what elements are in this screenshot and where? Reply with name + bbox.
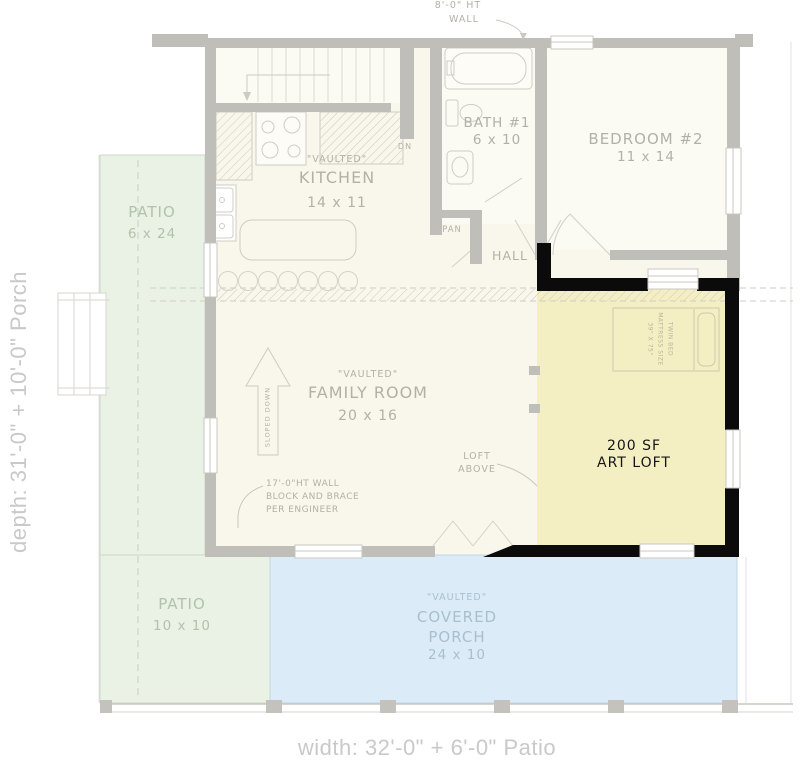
twin-bed-note-line1: TWIN BED	[664, 312, 674, 366]
kitchen-size-label: 14 x 11	[307, 196, 367, 211]
window-left-wall-upper	[204, 243, 217, 297]
bath1-label: BATH #1	[463, 116, 530, 131]
twin-bed-note-line2: MATTRESS SIZE	[654, 312, 664, 366]
bedroom2-size-label: 11 x 14	[617, 150, 675, 165]
wall-height-note-line2: WALL	[449, 15, 479, 25]
bedroom2-label: BEDROOM #2	[588, 131, 703, 148]
engineer-note-leader	[238, 486, 263, 528]
bathtub-icon	[445, 48, 532, 89]
stairs-down-label: DN	[398, 143, 412, 152]
art-loft-label: ART LOFT	[597, 456, 671, 471]
rear-patio-label: PATIO	[158, 596, 206, 613]
twin-bed-note: TWIN BED MATTRESS SIZE 39" X 75"	[644, 312, 675, 366]
pantry-label: PAN	[442, 226, 462, 235]
porch-posts	[100, 700, 738, 713]
patio-steps	[58, 293, 110, 395]
family-french-door-right	[473, 521, 513, 546]
loft-above-note-line1: LOFT	[463, 452, 491, 462]
bar-stools	[219, 272, 358, 291]
engineer-note-line1: 17'-0"HT WALL	[266, 479, 339, 489]
family-room-size-label: 20 x 16	[338, 409, 398, 424]
sloped-down-label: SLOPED DOWN	[264, 387, 271, 447]
window-left-wall-lower	[204, 418, 217, 473]
kitchen-fixtures	[209, 112, 403, 291]
wall-height-note-line1: 8'-0" HT	[435, 1, 481, 11]
covered-porch-vaulted-note: "VAULTED"	[427, 593, 487, 603]
kitchen-island	[240, 220, 356, 260]
bedroom-door	[553, 214, 570, 255]
loft-above-note-line2: ABOVE	[458, 465, 496, 475]
window-art-loft-right	[726, 430, 740, 488]
window-family-bottom	[295, 545, 362, 558]
rear-patio-size-label: 10 x 10	[153, 619, 211, 634]
stove-icon	[256, 112, 306, 165]
art-loft-area-label: 200 SF	[607, 439, 661, 454]
window-bedroom-right	[726, 148, 741, 214]
kitchen-label: KITCHEN	[299, 169, 375, 187]
staircase	[243, 48, 384, 102]
window-top-wall	[551, 36, 593, 49]
bath-door	[485, 178, 522, 202]
width-dimension-label: width: 32'-0" + 6'-0" Patio	[298, 736, 556, 760]
floor-plan: "VAULTED" KITCHEN 14 x 11 BATH #1 6 x 10…	[0, 0, 800, 773]
engineer-note-line3: PER ENGINEER	[266, 505, 339, 515]
hall-label: HALL	[492, 249, 528, 263]
kitchen-vaulted-note: "VAULTED"	[307, 155, 367, 165]
porch-edge	[100, 700, 793, 713]
engineer-note-line2: BLOCK AND BRACE	[266, 492, 359, 502]
family-room-vaulted-note: "VAULTED"	[338, 370, 398, 380]
leader-lines	[238, 20, 537, 528]
bath1-size-label: 6 x 10	[473, 133, 521, 148]
side-patio-label: PATIO	[128, 204, 176, 221]
side-patio-size-label: 6 x 24	[128, 227, 176, 242]
loft-above-leader	[497, 464, 537, 486]
door-swings	[433, 214, 610, 546]
twin-bed-note-line3: 39" X 75"	[644, 312, 654, 366]
wall-height-leader	[496, 20, 523, 35]
covered-porch-label: COVERED PORCH	[402, 607, 512, 648]
family-room-label: FAMILY ROOM	[308, 384, 428, 402]
covered-porch-size-label: 24 x 10	[428, 648, 486, 663]
bath-sink-icon	[447, 151, 473, 184]
family-french-door-left	[433, 521, 473, 546]
depth-dimension-label: depth: 31'-0" + 10'-0" Porch	[7, 271, 31, 553]
window-art-loft-top	[648, 269, 698, 289]
window-art-loft-bottom	[640, 544, 694, 558]
